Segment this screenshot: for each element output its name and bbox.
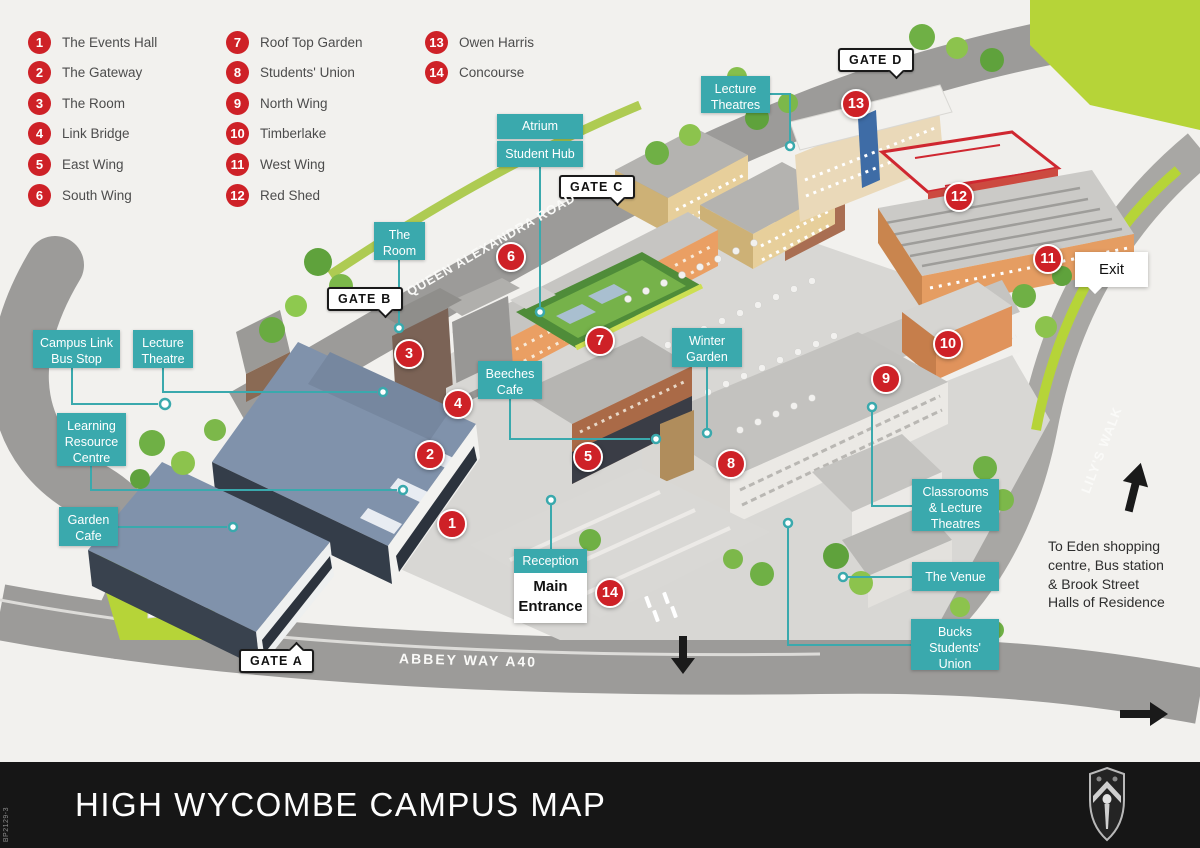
legend-marker: 5 — [28, 153, 51, 176]
map-marker-10: 10 — [933, 329, 963, 359]
legend-item: 14Concourse — [425, 61, 524, 84]
legend-label: The Gateway — [62, 65, 142, 80]
map-marker-9: 9 — [871, 364, 901, 394]
map-marker-2: 2 — [415, 440, 445, 470]
legend-marker: 14 — [425, 61, 448, 84]
marker-number: 1 — [448, 516, 456, 532]
marker-number: 5 — [584, 449, 592, 465]
legend-marker: 10 — [226, 122, 249, 145]
legend-label: The Room — [62, 96, 125, 111]
legend-item: 3The Room — [28, 92, 125, 115]
eden-direction-note: To Eden shopping centre, Bus station & B… — [1048, 537, 1165, 612]
legend-item: 8Students' Union — [226, 61, 355, 84]
legend-item: 11West Wing — [226, 153, 325, 176]
marker-number: 10 — [940, 336, 956, 352]
legend-label: West Wing — [260, 157, 325, 172]
label-winter-garden: Winter Garden — [672, 328, 742, 367]
legend-label: Students' Union — [260, 65, 355, 80]
footer-bar: HIGH WYCOMBE CAMPUS MAP BP2129-3 — [0, 762, 1200, 848]
map-marker-14: 14 — [595, 578, 625, 608]
map-marker-6: 6 — [496, 242, 526, 272]
legend-label: Link Bridge — [62, 126, 130, 141]
legend-item: 6South Wing — [28, 184, 132, 207]
gate-a-label: GATE A — [239, 649, 314, 673]
marker-number: 14 — [602, 585, 618, 601]
map-marker-3: 3 — [394, 339, 424, 369]
marker-number: 12 — [951, 189, 967, 205]
legend-marker: 3 — [28, 92, 51, 115]
marker-number: 4 — [454, 396, 462, 412]
legend-label: Timberlake — [260, 126, 326, 141]
legend-item: 1The Events Hall — [28, 31, 157, 54]
legend-marker: 11 — [226, 153, 249, 176]
legend-label: Concourse — [459, 65, 524, 80]
marker-number: 6 — [507, 249, 515, 265]
label-bucks-students-union: Bucks Students' Union — [911, 619, 999, 670]
label-campus-link-bus-stop: Campus Link Bus Stop — [33, 330, 120, 368]
legend-label: Owen Harris — [459, 35, 534, 50]
marker-number: 7 — [596, 333, 604, 349]
map-marker-13: 13 — [841, 89, 871, 119]
marker-number: 9 — [882, 371, 890, 387]
page-title: HIGH WYCOMBE CAMPUS MAP — [75, 786, 606, 824]
legend-item: 2The Gateway — [28, 61, 142, 84]
label-beeches-cafe: Beeches Cafe — [478, 361, 542, 399]
campus-map: 1The Events Hall 2The Gateway 3The Room … — [0, 0, 1200, 848]
legend-item: 4Link Bridge — [28, 122, 130, 145]
print-code: BP2129-3 — [3, 807, 10, 842]
legend-item: 7Roof Top Garden — [226, 31, 363, 54]
label-garden-cafe: Garden Cafe — [59, 507, 118, 546]
legend-marker: 7 — [226, 31, 249, 54]
legend-marker: 9 — [226, 92, 249, 115]
legend-item: 5East Wing — [28, 153, 124, 176]
main-entrance-text: Main Entrance — [514, 573, 587, 623]
reception-label: Reception — [514, 549, 587, 573]
label-lecture-theatre: Lecture Theatre — [133, 330, 193, 368]
map-marker-8: 8 — [716, 449, 746, 479]
legend-label: South Wing — [62, 188, 132, 203]
map-illustration — [0, 0, 1200, 762]
legend-marker: 1 — [28, 31, 51, 54]
label-classrooms-lecture-theatres: Classrooms & Lecture Theatres — [912, 479, 999, 531]
marker-number: 8 — [727, 456, 735, 472]
map-marker-5: 5 — [573, 442, 603, 472]
legend-marker: 2 — [28, 61, 51, 84]
map-marker-7: 7 — [585, 326, 615, 356]
legend-label: Red Shed — [260, 188, 320, 203]
map-marker-4: 4 — [443, 389, 473, 419]
label-learning-resource-centre: Learning Resource Centre — [57, 413, 126, 466]
legend-marker: 13 — [425, 31, 448, 54]
main-entrance-label: Reception Main Entrance — [514, 549, 587, 623]
label-atrium: Atrium — [497, 114, 583, 139]
legend-marker: 8 — [226, 61, 249, 84]
label-the-venue: The Venue — [912, 562, 999, 591]
marker-number: 3 — [405, 346, 413, 362]
legend-item: 9North Wing — [226, 92, 328, 115]
map-marker-1: 1 — [437, 509, 467, 539]
gate-b-label: GATE B — [327, 287, 403, 311]
university-crest-icon — [1087, 765, 1127, 845]
label-lecture-theatres: Lecture Theatres — [701, 76, 770, 113]
map-marker-12: 12 — [944, 182, 974, 212]
marker-number: 13 — [848, 96, 864, 112]
map-marker-11: 11 — [1033, 244, 1063, 274]
legend-label: North Wing — [260, 96, 328, 111]
legend-marker: 12 — [226, 184, 249, 207]
legend-item: 13Owen Harris — [425, 31, 534, 54]
legend-item: 12Red Shed — [226, 184, 320, 207]
label-student-hub: Student Hub — [497, 141, 583, 167]
exit-label: Exit — [1075, 252, 1148, 287]
label-the-room: The Room — [374, 222, 425, 260]
marker-number: 11 — [1040, 251, 1055, 267]
marker-number: 2 — [426, 447, 434, 463]
legend-label: East Wing — [62, 157, 124, 172]
gate-d-label: GATE D — [838, 48, 914, 72]
legend-marker: 6 — [28, 184, 51, 207]
legend-label: The Events Hall — [62, 35, 157, 50]
legend-label: Roof Top Garden — [260, 35, 363, 50]
legend-marker: 4 — [28, 122, 51, 145]
legend-item: 10Timberlake — [226, 122, 326, 145]
